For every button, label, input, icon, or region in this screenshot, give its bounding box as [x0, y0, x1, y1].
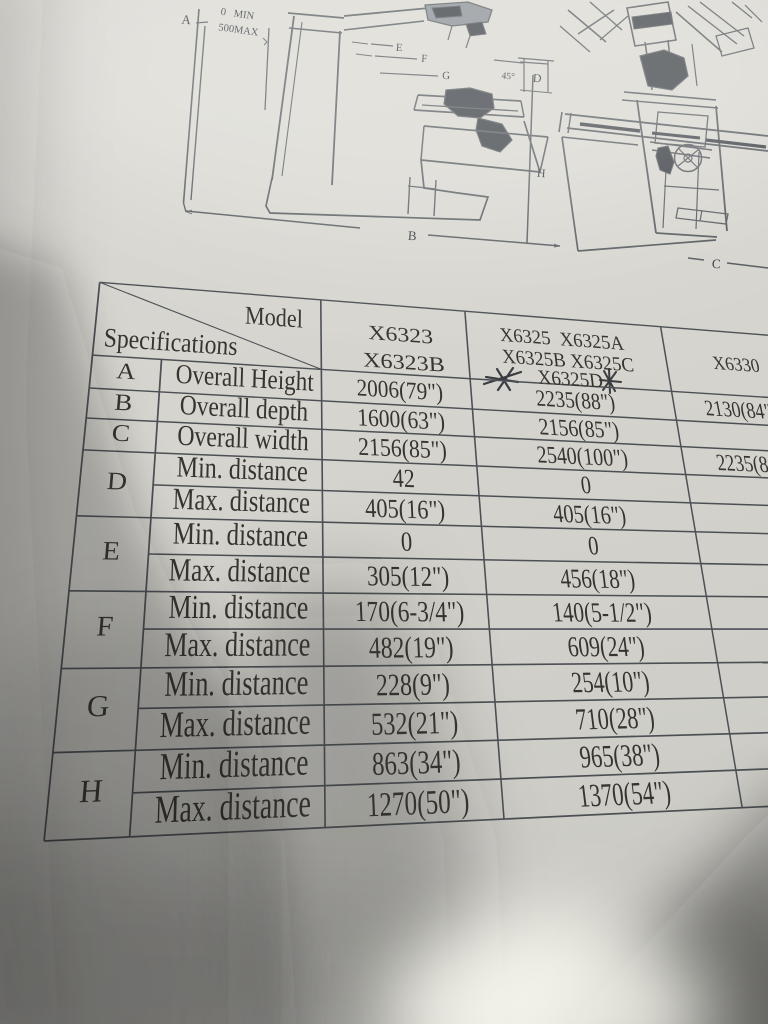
svg-text:2156(85"): 2156(85"): [537, 413, 620, 444]
svg-text:X6323B: X6323B: [363, 348, 446, 376]
svg-text:X6323: X6323: [368, 321, 434, 349]
svg-text:2540(100"): 2540(100"): [535, 440, 629, 471]
svg-text:Min. distance: Min. distance: [172, 517, 308, 554]
svg-text:405(16"): 405(16"): [551, 500, 627, 531]
svg-text:B: B: [113, 390, 133, 416]
svg-text:710(28"): 710(28"): [573, 700, 656, 736]
svg-text:2235(88"): 2235(88"): [714, 449, 768, 479]
svg-text:1600(63"): 1600(63"): [357, 404, 446, 436]
svg-text:Max. distance: Max. distance: [168, 552, 310, 590]
svg-text:2006(79"): 2006(79"): [356, 374, 444, 406]
svg-text:1370(54"): 1370(54"): [576, 775, 673, 815]
svg-text:965(38"): 965(38"): [578, 737, 662, 774]
svg-text:2130(84"): 2130(84"): [703, 397, 768, 425]
svg-text:Max. distance: Max. distance: [172, 481, 310, 519]
svg-text:609(24"): 609(24"): [566, 630, 647, 663]
svg-text:0: 0: [579, 471, 592, 499]
svg-text:140(5-1/2"): 140(5-1/2"): [550, 598, 653, 629]
svg-text:0: 0: [587, 532, 601, 561]
svg-text:405(16"): 405(16"): [365, 494, 446, 526]
svg-text:0: 0: [400, 527, 413, 558]
svg-text:C: C: [711, 256, 721, 272]
svg-text:2156(85"): 2156(85"): [357, 433, 447, 465]
svg-text:2235(88"): 2235(88"): [534, 385, 616, 415]
svg-text:254(10"): 254(10"): [570, 665, 652, 699]
svg-text:Model: Model: [245, 302, 304, 334]
svg-text:456(18"): 456(18"): [558, 564, 636, 595]
svg-text:A: A: [115, 359, 136, 385]
svg-text:42: 42: [392, 464, 415, 494]
svg-text:X6330: X6330: [711, 352, 762, 376]
